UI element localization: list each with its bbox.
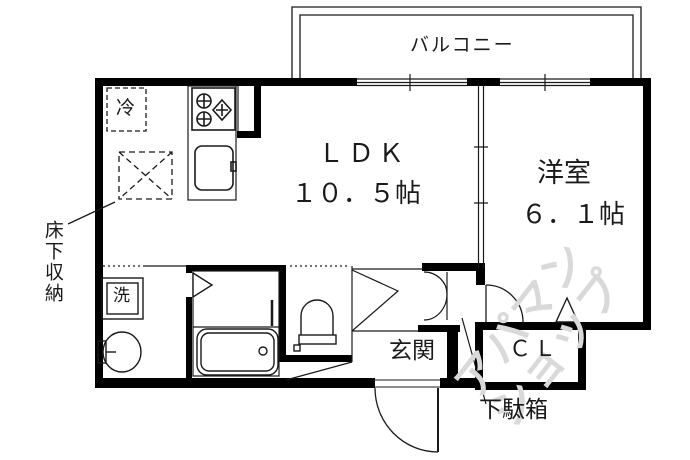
room-door-arc (486, 285, 523, 322)
refrigerator-label: 冷 (116, 98, 135, 119)
floor-plan: アパマン ショップ バルコニー ＬＤＫ １０．５帖 洋室 ６．１帖 玄関 ＣＬ … (0, 0, 690, 460)
bathroom-door-triangle (193, 273, 212, 297)
ldk-size-label: １０．５帖 (291, 180, 421, 209)
floor-plan-drawing (0, 0, 690, 460)
western-room-size-label: ６．１帖 (521, 201, 625, 230)
shoe-cabinet-doors (424, 272, 447, 320)
shoe-cabinet-label: 下駄箱 (479, 398, 548, 423)
balcony-label: バルコニー (410, 35, 515, 56)
closet-label: ＣＬ (509, 338, 559, 362)
bathtub-icon (197, 329, 278, 375)
entrance-hall-lines (352, 269, 422, 331)
closet-door-triangle (556, 298, 578, 322)
washer-label: 洗 (113, 287, 130, 306)
entrance-label: 玄関 (389, 339, 435, 364)
ldk-room-label: ＬＤＫ (318, 140, 408, 169)
sink-icon (195, 146, 236, 190)
underfloor-hatch-icon (68, 152, 172, 224)
walls (95, 78, 651, 390)
underfloor-storage-label: 床下収納 (42, 220, 63, 304)
toilet-icon (294, 300, 336, 351)
washbasin-icon (98, 332, 141, 372)
western-room-label: 洋室 (537, 159, 591, 189)
stove-icon (192, 88, 235, 130)
room-partition-sliding-door (474, 86, 488, 268)
entrance-door-arc (373, 380, 440, 452)
